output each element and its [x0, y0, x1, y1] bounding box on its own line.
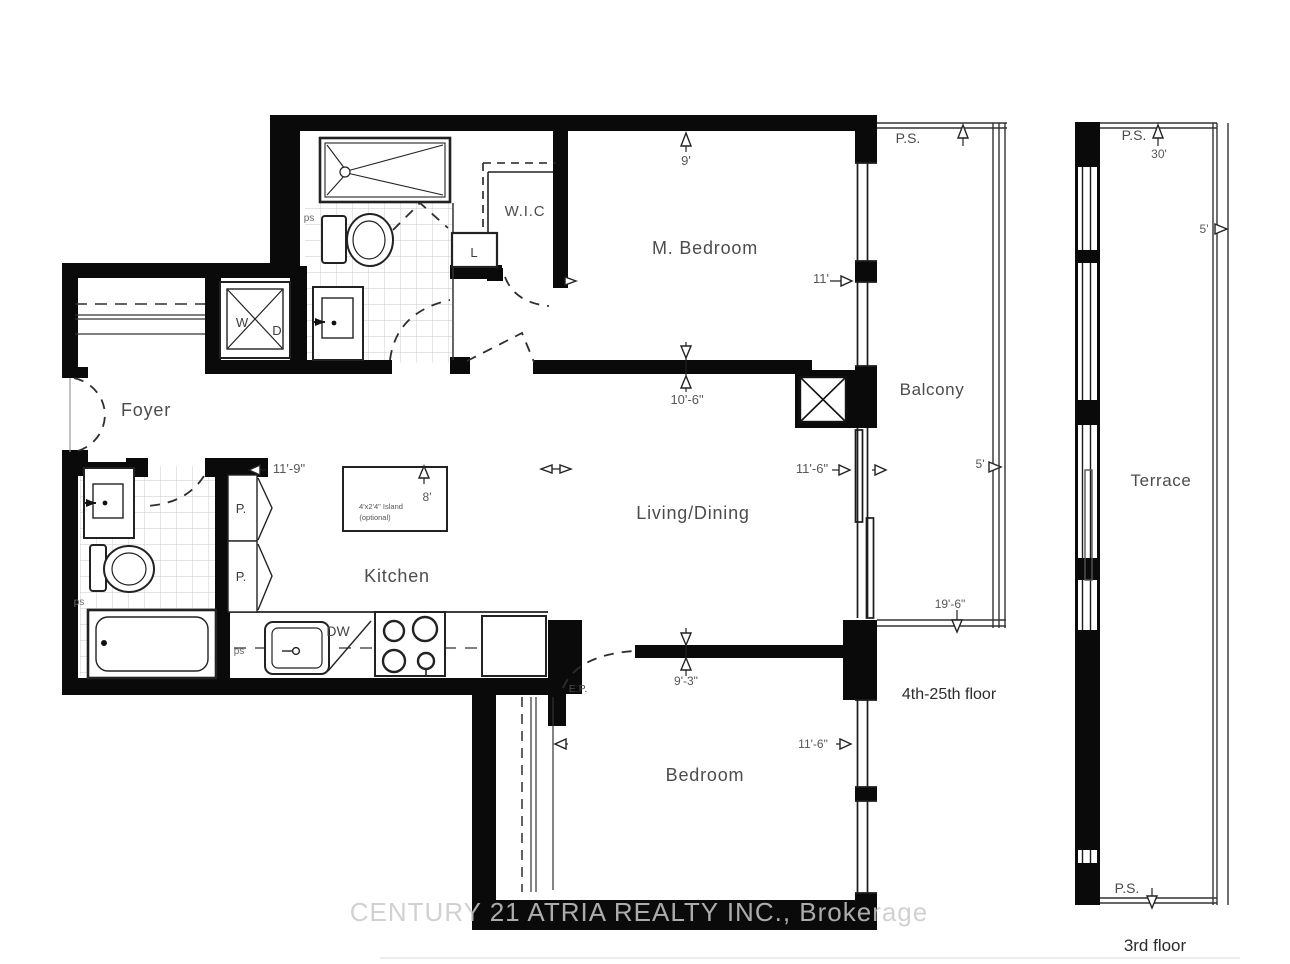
sink-vanity-2 — [84, 468, 134, 538]
wall-bedroom-west — [472, 678, 496, 930]
wall-bath1-west — [270, 115, 300, 278]
wic-jamb — [487, 268, 503, 281]
wd-jamb-left — [205, 266, 221, 370]
window-divider-mbed — [855, 261, 877, 282]
entry-door-swing — [74, 378, 105, 452]
ps-bath2-label: ps — [74, 597, 85, 608]
dim-mbed-depth: 11' — [813, 271, 829, 286]
wall-bedroom-top — [635, 645, 857, 658]
arrow-bed-depth-left — [555, 739, 566, 749]
terrace-label: Terrace — [1131, 471, 1192, 490]
arrow-balcony-top — [958, 125, 968, 138]
dim-living-depth: 11'-6" — [796, 461, 829, 476]
bedroom-window-glass-1 — [858, 700, 868, 787]
washer-label: W — [236, 315, 249, 330]
arrow-bed-depth-right — [840, 739, 851, 749]
balcony-door-panel-1 — [856, 430, 863, 522]
arrow-living-depth-1 — [839, 465, 850, 475]
terrace-window-slot — [1078, 580, 1097, 630]
balcony-railing — [877, 123, 1007, 628]
dim-bedroom-width: 9'-3" — [674, 674, 698, 688]
pantry-bifold-doors — [258, 478, 272, 610]
wall-foyer-top — [62, 263, 275, 278]
washer-dryer — [220, 282, 290, 358]
terrace-window-slot — [1078, 263, 1097, 400]
ps-kitchen-label: ps — [234, 646, 245, 657]
dim-living-width: 11'-9" — [273, 461, 306, 476]
wall-mbed-bottom — [533, 360, 812, 374]
dim-mbed-width: 9' — [681, 153, 691, 168]
terrace-floor-label: 3rd floor — [1124, 936, 1187, 955]
terrace-window-slot — [1078, 425, 1097, 558]
shower — [320, 138, 450, 202]
hall-door-swing — [467, 333, 534, 362]
arrow-mbed-w2-bottom — [681, 376, 691, 388]
arrow-bed-w-top — [681, 633, 691, 645]
foyer-label: Foyer — [121, 400, 171, 420]
arrow-mbed-door — [565, 277, 576, 285]
terrace-railing — [1100, 123, 1228, 905]
arrow-mbed-width — [681, 133, 691, 146]
floor-plan-svg: Foyer W.I.C L M. Bedroom Living/Dining K… — [0, 0, 1290, 964]
bedroom-window-glass-2 — [858, 801, 868, 893]
bottom-artifact-line — [380, 957, 1240, 959]
wd-jamb-right — [290, 266, 307, 370]
dim-terrace-length: 30' — [1151, 147, 1167, 161]
wall-wic-east — [553, 130, 568, 288]
arrow-terrace-depth — [1215, 224, 1227, 234]
stove — [375, 612, 445, 677]
dim-balcony-depth: 5' — [976, 457, 985, 471]
island-line1: 4'x2'4" Island — [359, 502, 403, 511]
toilet-1 — [322, 214, 393, 266]
bedroom-closet-lines — [531, 697, 553, 892]
wic-label: W.I.C — [505, 203, 546, 220]
brokerage-watermark: CENTURY 21 ATRIA REALTY INC., Brokerage — [350, 897, 928, 927]
entry-jamb-top — [62, 367, 88, 378]
pantry-2-label: P. — [236, 569, 247, 584]
ps-bath1-label: ps — [304, 213, 315, 224]
wall-left-lower — [62, 450, 78, 695]
floor-plan-page: Foyer W.I.C L M. Bedroom Living/Dining K… — [0, 0, 1290, 964]
ps-balcony-label: P.S. — [896, 130, 921, 146]
dim-bedroom-depth: 11'-6" — [798, 737, 828, 751]
electrical-panel-label: E.P. — [569, 683, 588, 695]
arrow-mbed-depth — [841, 276, 852, 286]
m-bedroom-label: M. Bedroom — [652, 238, 758, 258]
wall-ep-block — [548, 692, 566, 726]
pantry-closets — [228, 475, 272, 612]
linen-label: L — [470, 245, 477, 260]
arrow-mbed-w2-top — [681, 346, 691, 358]
bathtub — [88, 610, 216, 678]
walls — [62, 115, 1100, 930]
dim-terrace-depth: 5' — [1200, 222, 1209, 236]
mbed-window2-glass — [858, 282, 868, 366]
wall-se-living-corner — [843, 620, 877, 700]
dryer-label: D — [272, 323, 281, 338]
window-divider-bedroom — [855, 787, 877, 801]
arrow-terrace-bottom — [1147, 896, 1157, 908]
ps-terrace-bottom-label: P.S. — [1115, 880, 1140, 896]
living-dining-label: Living/Dining — [636, 503, 749, 523]
wall-left-upper — [62, 263, 78, 369]
arrow-terrace-top — [1153, 125, 1163, 138]
arrow-bed-w-bottom — [681, 658, 691, 670]
dishwasher-label: DW — [326, 623, 350, 639]
arrow-living-depth-2 — [875, 465, 886, 475]
dim-balcony-length: 19'-6" — [935, 597, 966, 611]
balcony-floors-label: 4th-25th floor — [902, 686, 997, 703]
fridge — [482, 616, 546, 676]
wall-top — [270, 115, 877, 131]
bedroom-label: Bedroom — [666, 765, 745, 785]
pantry-1-label: P. — [236, 501, 247, 516]
kitchen-sink — [265, 622, 329, 674]
structural-column — [800, 377, 846, 422]
wall-right-top-corner — [855, 115, 877, 163]
balcony-label: Balcony — [900, 380, 965, 399]
sink-vanity-1 — [313, 287, 363, 360]
island-line2: (optional) — [359, 513, 391, 522]
kitchen-label: Kitchen — [364, 566, 430, 586]
arrow-bowtie-right — [560, 465, 571, 473]
terrace-window-slot — [1078, 850, 1097, 863]
foyer-closet-shelf — [75, 315, 205, 334]
ps-terrace-top-label: P.S. — [1122, 127, 1147, 143]
terrace-window-slot — [1078, 167, 1097, 250]
mbed-door-swing — [505, 277, 549, 306]
dim-island-length: 8' — [423, 490, 432, 504]
dim-mbed-width2: 10'-6" — [670, 392, 704, 407]
toilet-2 — [90, 545, 154, 592]
arrow-bowtie-left — [541, 465, 552, 473]
mbed-window-glass — [858, 163, 868, 261]
